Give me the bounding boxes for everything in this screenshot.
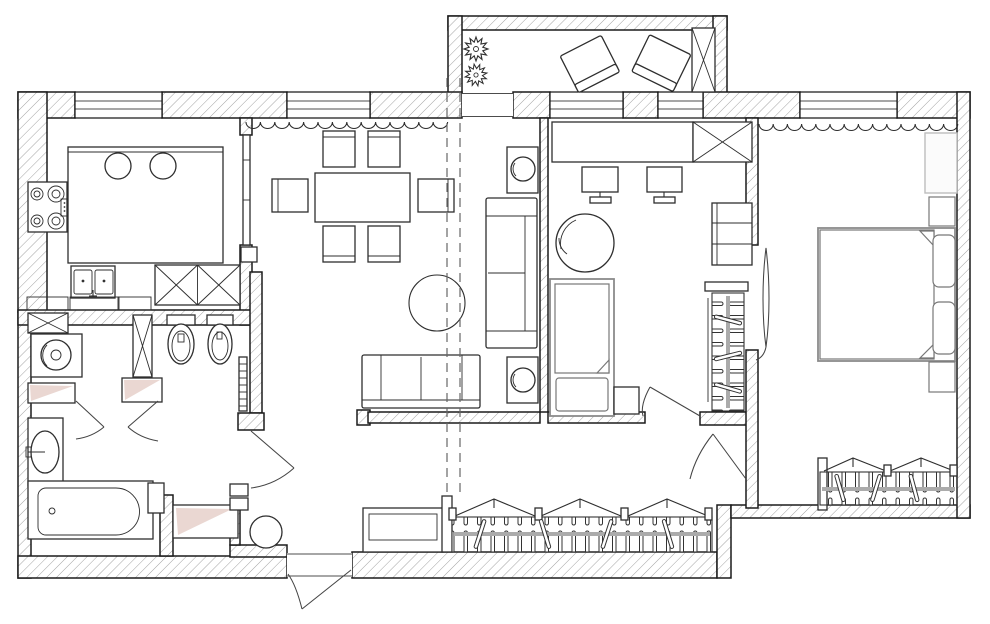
balcony-door-opening (462, 93, 513, 117)
wall-segment (703, 92, 800, 118)
kitchen-island (68, 147, 223, 263)
pillow (933, 302, 955, 354)
toilet (167, 315, 195, 364)
tub-step (148, 483, 164, 513)
cooktop (28, 182, 68, 232)
office-wardrobe (705, 282, 748, 411)
radiator-niche (173, 505, 238, 538)
wall-segment (513, 92, 550, 118)
sofa (362, 355, 480, 408)
dining-chair (272, 179, 308, 212)
wall-segment (623, 92, 658, 118)
bench (363, 508, 443, 552)
washing-machine (31, 334, 82, 377)
shelving-unit (712, 203, 752, 265)
curtain (246, 122, 448, 129)
nightstand (614, 387, 639, 414)
kitchen-window (75, 92, 162, 118)
dining-chair (368, 226, 400, 262)
dismantled-wall-lines (447, 78, 460, 497)
wc-door (128, 401, 158, 441)
wall-segment (368, 412, 540, 423)
dining-chair (418, 179, 454, 212)
bathroom (26, 313, 247, 539)
dining-chair (323, 131, 355, 167)
wall-segment (717, 505, 731, 578)
dining-chair (323, 226, 355, 262)
bathtub (28, 481, 153, 539)
desk (552, 122, 693, 162)
hall-wardrobe (449, 499, 712, 552)
wall-segment (162, 92, 287, 118)
wall-segment (700, 412, 748, 425)
island-sink (105, 153, 131, 179)
bathroom-entry-door (251, 431, 294, 488)
floor-plan-drawing (0, 0, 990, 624)
wall-segment (731, 505, 970, 518)
wall-segment (957, 92, 970, 518)
living-window (287, 92, 370, 118)
office-door (642, 387, 700, 416)
radiator-niche (28, 383, 75, 403)
single-bed (550, 279, 614, 416)
dresser (925, 133, 957, 193)
plant-icon (464, 37, 488, 61)
entry-opening (287, 553, 352, 577)
side-table (507, 357, 538, 403)
kitchen-pass-panel (241, 135, 257, 262)
balcony-armchair (560, 35, 620, 92)
kitchen (27, 135, 257, 310)
kitchen-sink (71, 266, 115, 298)
hanging-chair (556, 214, 614, 272)
island-sink (150, 153, 176, 179)
dining-table (315, 173, 410, 222)
plant-icon (462, 61, 490, 89)
loveseat (486, 198, 537, 348)
bedroom (756, 124, 958, 510)
radiator-niche (122, 378, 162, 402)
bidet (207, 315, 233, 364)
bath-door (76, 401, 104, 439)
shoe-cabinet (230, 484, 248, 510)
wall-segment (238, 413, 264, 430)
bedroom-window (800, 92, 897, 118)
office (550, 122, 752, 416)
office-window-2 (658, 92, 703, 118)
wall-segment (746, 350, 758, 508)
balcony-armchair (632, 35, 691, 92)
double-bed (818, 228, 955, 361)
balcony (462, 28, 715, 93)
dining-chair (368, 131, 400, 167)
bedroom-door (756, 248, 769, 360)
wall-segment (448, 16, 727, 30)
wall-segment (250, 272, 262, 413)
wardrobe-side-panel (442, 496, 452, 552)
x-cabinet (28, 313, 68, 333)
nightstand (929, 197, 955, 226)
pouf (250, 516, 282, 548)
office-x-cabinet (693, 122, 752, 162)
curtain (759, 124, 958, 131)
office-window-1 (550, 92, 623, 118)
wall-segment (18, 556, 287, 578)
wall-segment (540, 118, 548, 412)
wall-segment (352, 552, 717, 578)
x-column (133, 315, 152, 377)
round-rug (409, 275, 465, 331)
side-table (507, 147, 538, 193)
wall-segment (240, 118, 252, 135)
hall-bedroom-door (690, 434, 746, 479)
monitor (647, 167, 682, 203)
balcony-cabinet (692, 28, 715, 92)
living-room (246, 122, 538, 408)
monitor (582, 167, 618, 203)
kitchen-x-cabinets (155, 265, 240, 305)
towel-radiator (239, 357, 247, 411)
dining-set (272, 131, 454, 262)
wall-segment (370, 92, 462, 118)
washbasin (26, 418, 63, 486)
floor-plan (0, 0, 990, 624)
nightstand (929, 362, 955, 392)
pillow (933, 235, 955, 287)
hallway (230, 484, 712, 552)
bedroom-wardrobe (818, 458, 957, 510)
